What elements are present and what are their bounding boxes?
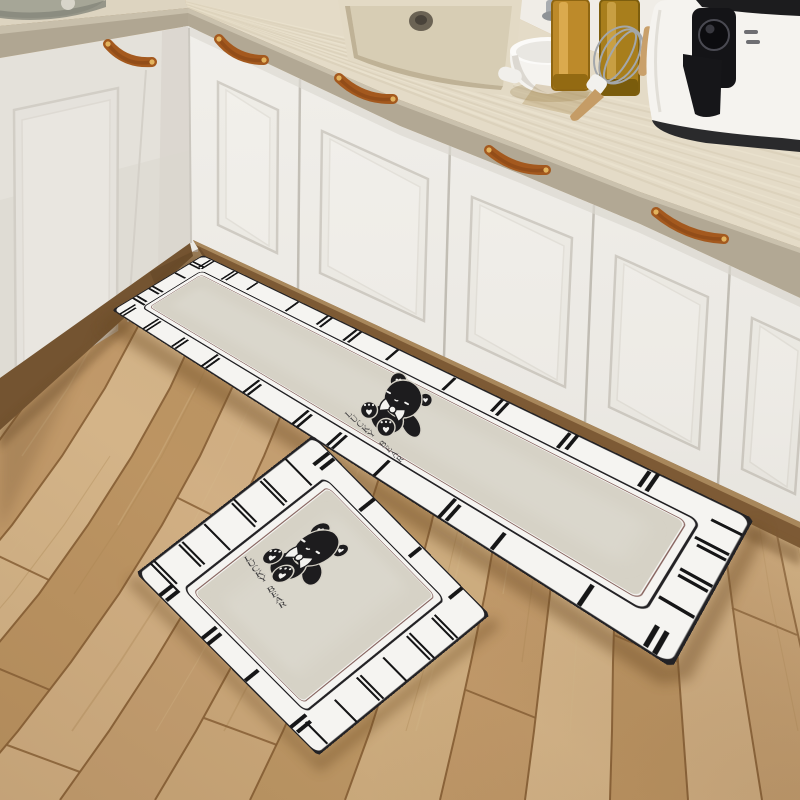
- svg-text:R: R: [394, 453, 406, 465]
- svg-text:Y: Y: [365, 428, 377, 440]
